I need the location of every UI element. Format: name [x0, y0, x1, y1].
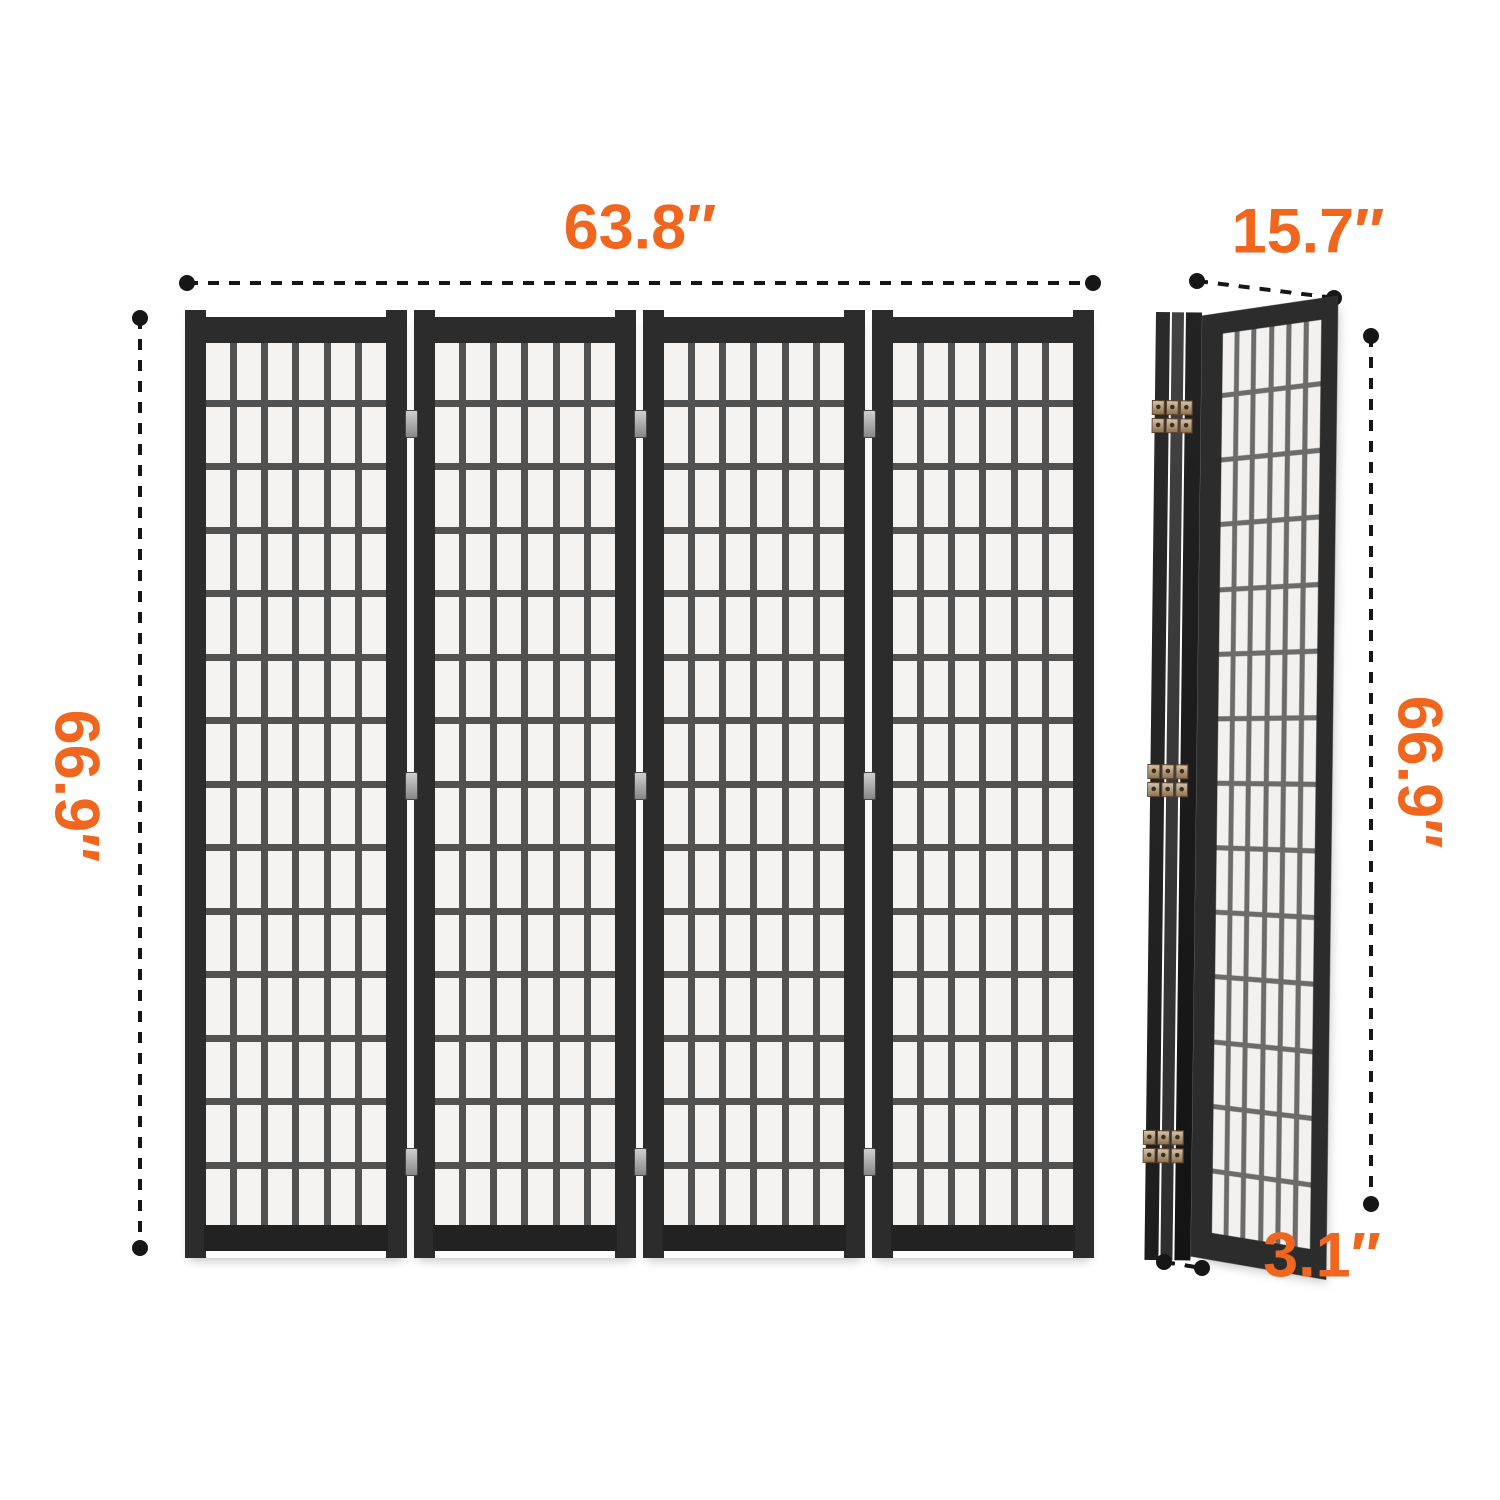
grid-cell [924, 661, 948, 718]
grid-cell [986, 1042, 1010, 1099]
grid-cell [1018, 978, 1042, 1035]
grid-cell [331, 661, 355, 718]
grid-cell [924, 915, 948, 972]
grid-cell [1214, 1044, 1227, 1105]
grid-cell [664, 661, 688, 718]
dimension-endpoint-dot [132, 1240, 148, 1256]
grid-cell [466, 1169, 490, 1226]
panel-right-stile [386, 310, 407, 1258]
grid-cell [206, 978, 230, 1035]
grid-cell [1284, 853, 1297, 915]
grid-cell [1304, 653, 1317, 715]
grid-cell [206, 1042, 230, 1099]
grid-cell [789, 534, 813, 591]
grid-cell [466, 534, 490, 591]
grid-cell [1049, 470, 1073, 527]
grid-cell [955, 534, 979, 591]
grid-cell [924, 597, 948, 654]
grid-cell [497, 915, 521, 972]
grid-cell [695, 1042, 719, 1099]
grid-cell [1229, 1176, 1242, 1238]
grid-cell [1307, 387, 1320, 450]
hinge [405, 410, 418, 438]
grid-cell [591, 1169, 615, 1226]
grid-cell [1220, 526, 1233, 586]
grid-cell [1018, 343, 1042, 400]
grid-cell [1285, 787, 1298, 848]
grid-cell [1251, 721, 1264, 781]
grid-cell [664, 470, 688, 527]
grid-cell [893, 788, 917, 845]
grid-cell [268, 978, 292, 1035]
grid-cell [1281, 1117, 1294, 1180]
grid-cell [695, 788, 719, 845]
grid-cell [757, 343, 781, 400]
grid-cell [1308, 320, 1321, 383]
grid-cell [695, 915, 719, 972]
grid-cell [528, 978, 552, 1035]
hinge [1157, 1130, 1170, 1145]
grid-cell [268, 788, 292, 845]
grid-cell [893, 978, 917, 1035]
grid-cell [1049, 597, 1073, 654]
grid-cell [1267, 852, 1280, 913]
grid-cell [362, 724, 386, 781]
grid-cell [237, 343, 261, 400]
panel-top-rail [433, 317, 617, 344]
folded-front-panel [1190, 295, 1338, 1279]
hinge [1161, 764, 1174, 779]
grid-cell [664, 407, 688, 464]
grid-cell [237, 1042, 261, 1099]
grid-cell [299, 407, 323, 464]
hinge [863, 410, 876, 438]
grid-cell [893, 343, 917, 400]
grid-cell [237, 1169, 261, 1226]
grid-cell [299, 1105, 323, 1162]
grid-cell [1249, 917, 1262, 978]
grid-cell [560, 343, 584, 400]
grid-cell [757, 407, 781, 464]
grid-cell [528, 1169, 552, 1226]
grid-cell [237, 1105, 261, 1162]
grid-cell [1049, 343, 1073, 400]
grid-cell [206, 915, 230, 972]
grid-cell [528, 915, 552, 972]
grid-cell [528, 597, 552, 654]
folded-height-dimension-label: 66.9″ [1388, 696, 1451, 849]
grid-cell [1049, 407, 1073, 464]
grid-cell [528, 661, 552, 718]
grid-cell [986, 1105, 1010, 1162]
grid-cell [1229, 1111, 1242, 1173]
grid-cell [726, 978, 750, 1035]
hinge [1180, 418, 1193, 433]
grid-cell [757, 851, 781, 908]
dimension-endpoint-dot [1363, 1196, 1379, 1212]
grid-cell [726, 470, 750, 527]
grid-cell [362, 597, 386, 654]
hinge [1171, 1148, 1184, 1163]
grid-cell [1231, 981, 1244, 1042]
grid-cell [466, 407, 490, 464]
grid-cell [820, 724, 844, 781]
grid-cell [362, 1105, 386, 1162]
grid-cell [1290, 389, 1303, 451]
hinge [405, 1148, 418, 1176]
grid-cell [1290, 322, 1303, 385]
grid-cell [1298, 1119, 1311, 1182]
grid-cell [1302, 787, 1315, 849]
panel-right-stile [615, 310, 636, 1258]
hinge [1143, 1130, 1156, 1145]
grid-cell [466, 788, 490, 845]
grid-cell [726, 915, 750, 972]
grid-cell [986, 978, 1010, 1035]
dimension-endpoint-dot [1156, 1254, 1172, 1270]
grid-cell [924, 1169, 948, 1226]
grid-cell [237, 724, 261, 781]
hinge [863, 1148, 876, 1176]
grid-cell [497, 597, 521, 654]
grid-cell [1216, 850, 1229, 910]
hinge [1147, 764, 1160, 779]
grid-cell [1272, 391, 1285, 453]
front-height-dimension-label: 66.9″ [45, 710, 108, 863]
grid-cell [789, 978, 813, 1035]
grid-cell [237, 661, 261, 718]
grid-cell [893, 407, 917, 464]
folded-height-dimension-line [1369, 336, 1373, 1204]
grid-cell [955, 1042, 979, 1099]
grid-cell [331, 597, 355, 654]
divider-panel [872, 310, 1094, 1258]
grid-cell [497, 343, 521, 400]
grid-cell [528, 1042, 552, 1099]
grid-cell [497, 1169, 521, 1226]
grid-cell [1018, 597, 1042, 654]
grid-cell [591, 407, 615, 464]
grid-cell [789, 470, 813, 527]
grid-cell [955, 724, 979, 781]
grid-cell [560, 597, 584, 654]
grid-cell [893, 661, 917, 718]
grid-cell [1233, 786, 1246, 846]
hinge [1171, 1130, 1184, 1145]
grid-cell [955, 788, 979, 845]
panel-top-rail [204, 317, 388, 344]
grid-cell [560, 470, 584, 527]
grid-cell [497, 978, 521, 1035]
grid-cell [1219, 591, 1232, 651]
panel-lattice-grid [664, 343, 844, 1225]
front-width-dimension-line [187, 281, 1093, 285]
grid-cell [268, 724, 292, 781]
hinge [634, 1148, 647, 1176]
grid-cell [820, 851, 844, 908]
grid-cell [497, 534, 521, 591]
grid-cell [1266, 918, 1279, 980]
grid-cell [331, 978, 355, 1035]
grid-cell [528, 470, 552, 527]
grid-cell [1049, 851, 1073, 908]
grid-cell [591, 851, 615, 908]
product-dimension-diagram: 63.8″ 66.9″ 15.7″ 66.9″ 3.1″ [0, 0, 1500, 1500]
grid-cell [986, 661, 1010, 718]
grid-cell [299, 1169, 323, 1226]
grid-cell [893, 470, 917, 527]
panel-right-stile [844, 310, 865, 1258]
grid-cell [591, 470, 615, 527]
grid-cell [268, 534, 292, 591]
front-height-dimension-line [138, 318, 142, 1248]
hinge [405, 772, 418, 800]
grid-cell [268, 407, 292, 464]
grid-cell [789, 915, 813, 972]
grid-cell [497, 407, 521, 464]
grid-cell [1306, 453, 1319, 515]
grid-cell [955, 851, 979, 908]
grid-cell [893, 534, 917, 591]
grid-cell [362, 915, 386, 972]
grid-cell [820, 343, 844, 400]
grid-cell [497, 661, 521, 718]
grid-cell [528, 407, 552, 464]
grid-cell [268, 1042, 292, 1099]
grid-cell [820, 597, 844, 654]
grid-cell [331, 534, 355, 591]
grid-cell [1217, 721, 1230, 781]
grid-cell [299, 661, 323, 718]
hinge [1152, 400, 1165, 415]
grid-cell [466, 1042, 490, 1099]
grid-cell [1018, 1169, 1042, 1226]
grid-cell [560, 915, 584, 972]
grid-cell [820, 470, 844, 527]
grid-cell [924, 724, 948, 781]
grid-cell [1215, 915, 1228, 975]
grid-cell [560, 661, 584, 718]
grid-cell [331, 788, 355, 845]
hinge [1152, 418, 1165, 433]
grid-cell [664, 534, 688, 591]
grid-cell [1273, 325, 1286, 387]
hinge [1180, 400, 1193, 415]
panel-left-stile [185, 310, 206, 1258]
grid-cell [820, 407, 844, 464]
hinge [634, 410, 647, 438]
grid-cell [789, 1105, 813, 1162]
grid-cell [1049, 1042, 1073, 1099]
grid-cell [1269, 655, 1282, 716]
grid-cell [820, 1042, 844, 1099]
grid-cell [1289, 455, 1302, 517]
grid-cell [1263, 1115, 1276, 1177]
grid-cell [528, 534, 552, 591]
grid-cell [820, 1169, 844, 1226]
grid-cell [664, 788, 688, 845]
panel-bottom-rail [433, 1224, 617, 1251]
grid-cell [362, 407, 386, 464]
grid-cell [268, 1105, 292, 1162]
grid-cell [1288, 521, 1301, 583]
grid-cell [435, 661, 459, 718]
grid-cell [924, 851, 948, 908]
grid-cell [237, 470, 261, 527]
grid-cell [726, 534, 750, 591]
panel-lattice-grid [206, 343, 386, 1225]
grid-cell [268, 915, 292, 972]
divider-panel [185, 310, 407, 1258]
grid-cell [1018, 534, 1042, 591]
panel-lattice-grid [1212, 320, 1321, 1249]
grid-cell [1283, 919, 1296, 981]
grid-cell [955, 1169, 979, 1226]
grid-cell [299, 851, 323, 908]
grid-cell [893, 1042, 917, 1099]
grid-cell [1049, 534, 1073, 591]
grid-cell [237, 597, 261, 654]
grid-cell [664, 1042, 688, 1099]
grid-cell [466, 915, 490, 972]
grid-cell [955, 978, 979, 1035]
grid-cell [268, 661, 292, 718]
grid-cell [664, 915, 688, 972]
grid-cell [789, 661, 813, 718]
hinge [1147, 782, 1160, 797]
grid-cell [497, 724, 521, 781]
grid-cell [591, 1105, 615, 1162]
grid-cell [206, 851, 230, 908]
grid-cell [789, 1042, 813, 1099]
grid-cell [1018, 470, 1042, 527]
grid-cell [435, 343, 459, 400]
grid-cell [695, 1105, 719, 1162]
panel-right-stile [1073, 310, 1094, 1258]
grid-cell [789, 407, 813, 464]
grid-cell [1018, 1105, 1042, 1162]
grid-cell [695, 470, 719, 527]
grid-cell [435, 915, 459, 972]
grid-cell [986, 534, 1010, 591]
grid-cell [893, 1169, 917, 1226]
grid-cell [497, 788, 521, 845]
grid-cell [1239, 330, 1252, 392]
grid-cell [591, 724, 615, 781]
grid-cell [726, 597, 750, 654]
grid-cell [1254, 524, 1267, 585]
hinge [1166, 418, 1179, 433]
grid-cell [206, 1105, 230, 1162]
grid-cell [591, 788, 615, 845]
hinge [1175, 782, 1188, 797]
grid-cell [820, 788, 844, 845]
grid-cell [757, 915, 781, 972]
dimension-endpoint-dot [1194, 1260, 1210, 1276]
panel-lattice-grid [893, 343, 1073, 1225]
grid-cell [1049, 978, 1073, 1035]
grid-cell [591, 343, 615, 400]
grid-cell [1235, 656, 1248, 716]
grid-cell [362, 851, 386, 908]
grid-cell [466, 724, 490, 781]
grid-cell [1282, 985, 1295, 1047]
grid-cell [206, 724, 230, 781]
grid-cell [924, 534, 948, 591]
grid-cell [789, 851, 813, 908]
grid-cell [1301, 920, 1314, 982]
grid-cell [726, 661, 750, 718]
grid-cell [664, 343, 688, 400]
grid-cell [268, 851, 292, 908]
grid-cell [362, 661, 386, 718]
grid-cell [497, 1105, 521, 1162]
grid-cell [1238, 395, 1251, 456]
folded-view-screen [1144, 312, 1338, 1262]
grid-cell [299, 470, 323, 527]
grid-cell [1230, 1046, 1243, 1107]
grid-cell [726, 788, 750, 845]
grid-cell [362, 788, 386, 845]
grid-cell [1247, 1048, 1260, 1110]
grid-cell [237, 978, 261, 1035]
dimension-endpoint-dot [132, 310, 148, 326]
grid-cell [1214, 980, 1227, 1041]
grid-cell [1252, 655, 1265, 716]
grid-cell [435, 534, 459, 591]
grid-cell [726, 1169, 750, 1226]
grid-cell [695, 661, 719, 718]
hinge [863, 772, 876, 800]
grid-cell [466, 597, 490, 654]
grid-cell [466, 851, 490, 908]
folded-depth-dimension-label: 15.7″ [1232, 201, 1385, 264]
grid-cell [206, 788, 230, 845]
grid-cell [1222, 332, 1235, 393]
grid-cell [1221, 462, 1234, 523]
grid-cell [924, 407, 948, 464]
grid-cell [726, 407, 750, 464]
grid-cell [299, 978, 323, 1035]
grid-cell [986, 851, 1010, 908]
grid-cell [560, 1042, 584, 1099]
grid-cell [893, 1105, 917, 1162]
grid-cell [757, 978, 781, 1035]
grid-cell [435, 1105, 459, 1162]
folded-thickness-dimension-label: 3.1″ [1263, 1225, 1381, 1288]
grid-cell [331, 1105, 355, 1162]
grid-cell [820, 978, 844, 1035]
grid-cell [1246, 1178, 1259, 1240]
grid-cell [924, 788, 948, 845]
grid-cell [1302, 853, 1315, 915]
grid-cell [466, 978, 490, 1035]
grid-cell [695, 597, 719, 654]
grid-cell [955, 470, 979, 527]
grid-cell [528, 851, 552, 908]
grid-cell [560, 724, 584, 781]
grid-cell [695, 1169, 719, 1226]
grid-cell [757, 597, 781, 654]
grid-cell [820, 1105, 844, 1162]
grid-cell [757, 1169, 781, 1226]
grid-cell [1306, 520, 1319, 582]
grid-cell [591, 661, 615, 718]
grid-cell [820, 915, 844, 972]
grid-cell [528, 343, 552, 400]
grid-cell [1265, 984, 1278, 1046]
grid-cell [331, 1169, 355, 1226]
